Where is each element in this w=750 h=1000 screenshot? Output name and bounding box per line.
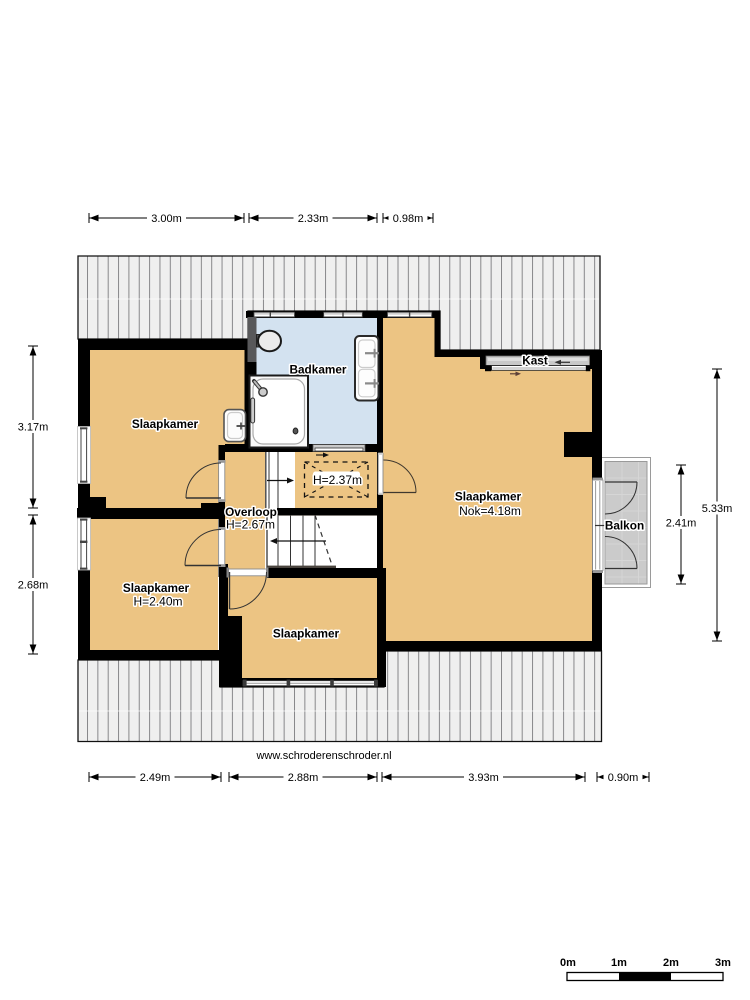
svg-text:2.49m: 2.49m xyxy=(140,772,171,784)
svg-text:2.88m: 2.88m xyxy=(288,772,319,784)
svg-text:Kast: Kast xyxy=(522,354,548,368)
svg-text:2.33m: 2.33m xyxy=(298,213,329,225)
svg-text:Balkon: Balkon xyxy=(605,519,644,533)
svg-text:3.93m: 3.93m xyxy=(468,772,499,784)
svg-text:2.68m: 2.68m xyxy=(18,580,49,592)
svg-text:1m: 1m xyxy=(611,957,627,969)
svg-text:0.98m: 0.98m xyxy=(393,213,424,225)
svg-text:H=2.67m: H=2.67m xyxy=(226,518,275,532)
svg-text:Slaapkamer: Slaapkamer xyxy=(455,490,522,504)
svg-text:2m: 2m xyxy=(663,957,679,969)
svg-text:www.schroderenschroder.nl: www.schroderenschroder.nl xyxy=(255,750,391,762)
svg-text:5.33m: 5.33m xyxy=(702,503,733,515)
svg-text:H=2.40m: H=2.40m xyxy=(133,595,182,609)
svg-text:2.41m: 2.41m xyxy=(666,518,697,530)
svg-text:0.90m: 0.90m xyxy=(608,772,639,784)
svg-text:Slaapkamer: Slaapkamer xyxy=(273,627,340,641)
svg-text:3.00m: 3.00m xyxy=(151,213,182,225)
svg-text:Nok=4.18m: Nok=4.18m xyxy=(459,504,521,518)
svg-text:3.17m: 3.17m xyxy=(18,422,49,434)
svg-text:3m: 3m xyxy=(715,957,731,969)
svg-text:0m: 0m xyxy=(560,957,576,969)
svg-text:Slaapkamer: Slaapkamer xyxy=(123,581,190,595)
svg-text:Badkamer: Badkamer xyxy=(289,363,346,377)
svg-text:H=2.37m: H=2.37m xyxy=(313,473,362,487)
svg-text:Slaapkamer: Slaapkamer xyxy=(132,417,199,431)
